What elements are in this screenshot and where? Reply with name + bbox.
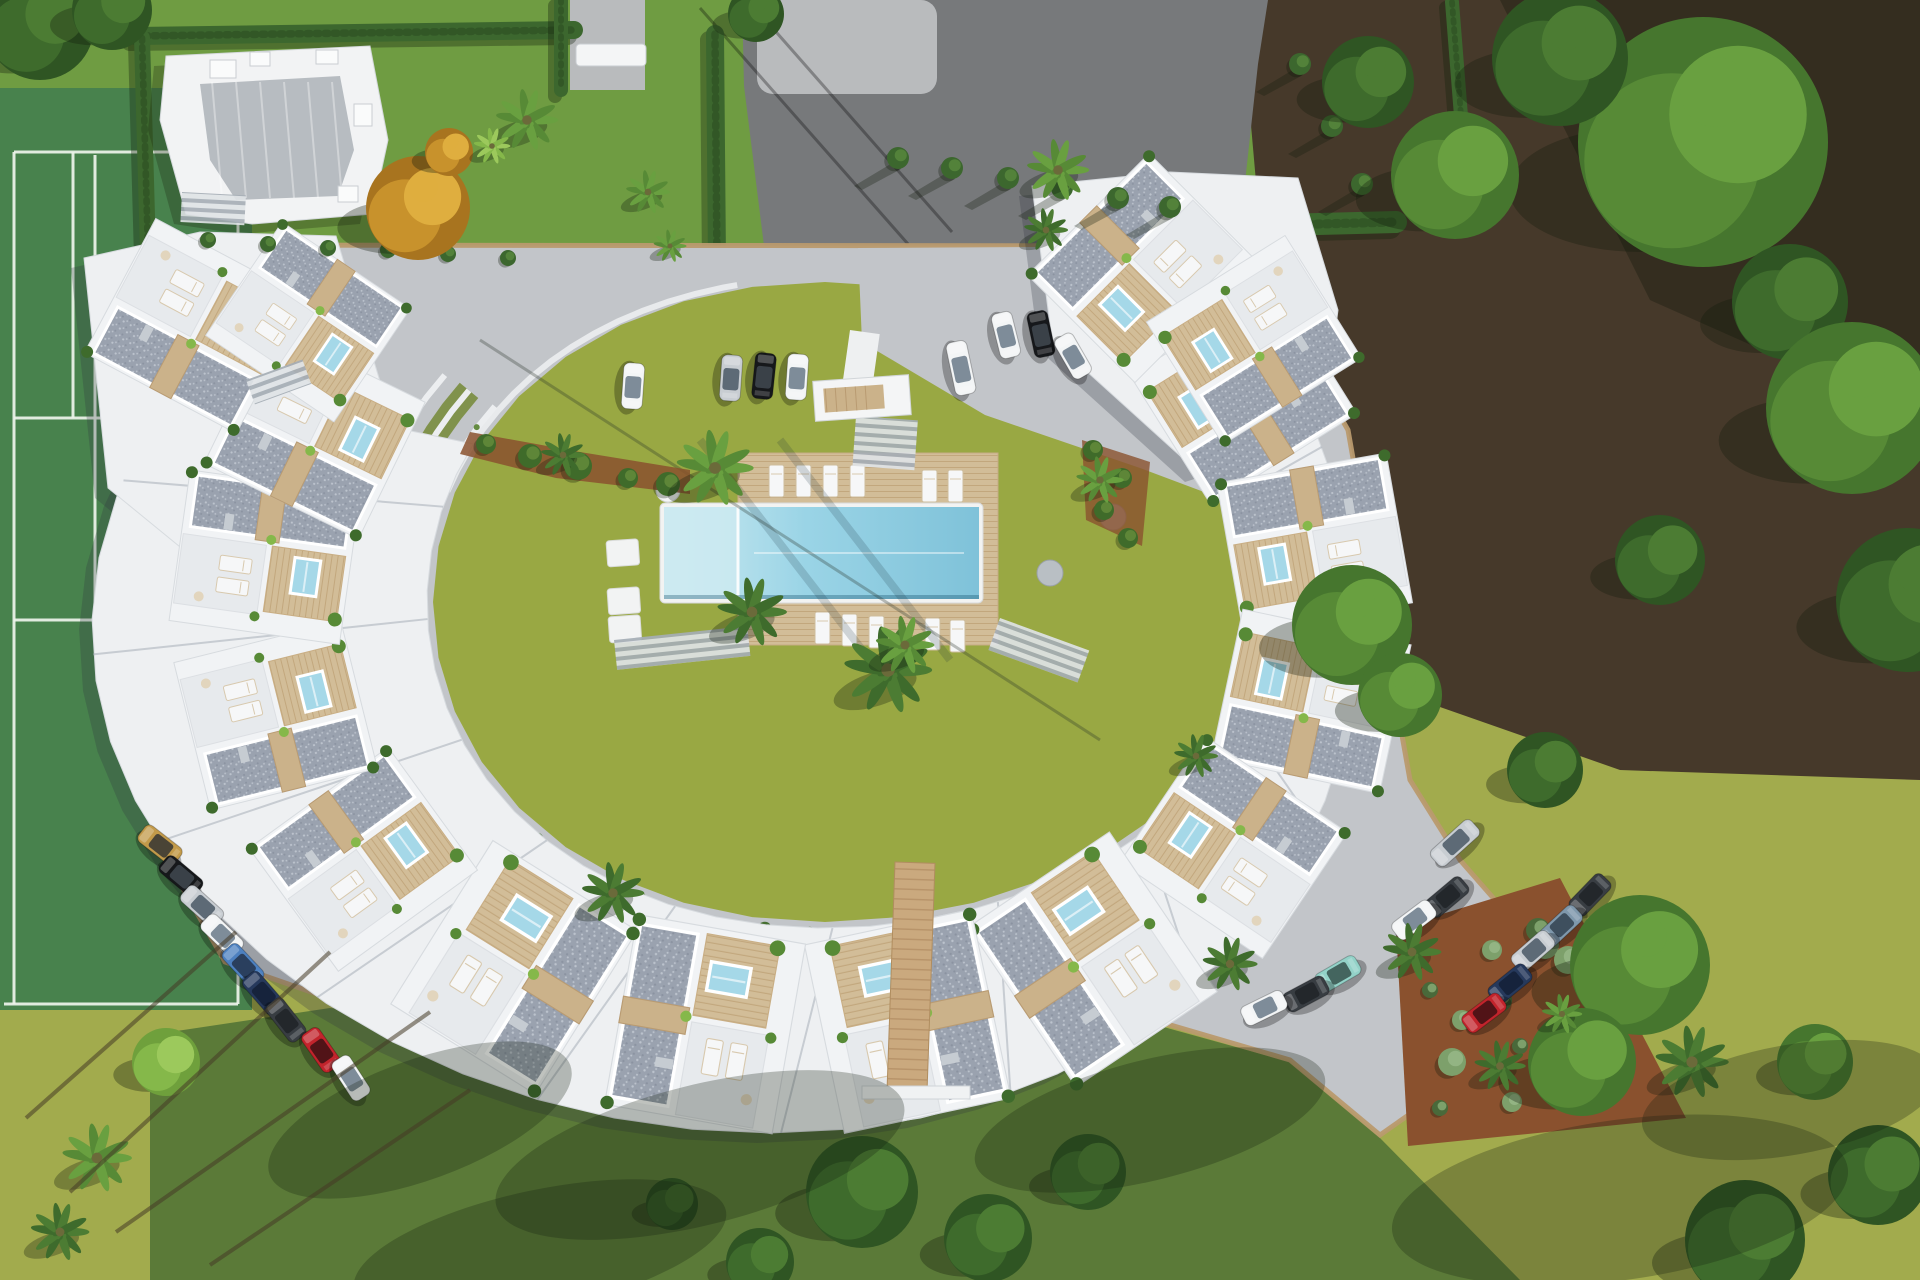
tree-highlight bbox=[1392, 666, 1416, 690]
bush-highlight bbox=[1489, 942, 1500, 953]
tree-highlight bbox=[1780, 263, 1812, 295]
lawn-strip bbox=[645, 0, 709, 262]
villa-rooflight bbox=[316, 50, 338, 64]
bush-highlight bbox=[895, 149, 907, 161]
bush-highlight bbox=[483, 436, 494, 447]
tree-highlight bbox=[1681, 57, 1751, 127]
car-glass-roof bbox=[624, 376, 641, 399]
palm-crown bbox=[1686, 1056, 1697, 1067]
palm-crown bbox=[56, 1228, 65, 1237]
car-glass-roof bbox=[788, 367, 805, 390]
villa-rooflight bbox=[250, 52, 270, 66]
bush-highlight bbox=[1297, 55, 1309, 67]
aerial-render bbox=[0, 0, 1920, 1280]
tree-highlight bbox=[1443, 131, 1479, 167]
tree-highlight bbox=[409, 173, 438, 202]
sun-lounger bbox=[815, 612, 830, 644]
tree-highlight bbox=[1548, 12, 1586, 50]
rim-shrub bbox=[474, 424, 480, 430]
roof-terrace bbox=[174, 534, 267, 615]
lawn-lounger bbox=[606, 539, 640, 567]
bush-highlight bbox=[1428, 984, 1437, 993]
bush-highlight bbox=[1005, 169, 1017, 181]
tree-highlight bbox=[445, 136, 458, 149]
sun-lounger bbox=[850, 465, 865, 497]
car-glass-roof bbox=[755, 366, 773, 389]
villa-rooflight bbox=[338, 186, 358, 202]
bush-highlight bbox=[1115, 189, 1127, 201]
tree-highlight bbox=[160, 1039, 179, 1058]
bush-highlight bbox=[1518, 1040, 1527, 1049]
car-glass-roof bbox=[722, 368, 739, 391]
bush-highlight bbox=[266, 238, 275, 247]
central-walk-spine bbox=[887, 862, 935, 1091]
bush-highlight bbox=[1438, 1102, 1447, 1111]
car-trunk bbox=[624, 400, 639, 406]
villa-rooflight bbox=[210, 60, 236, 78]
entrance-gate bbox=[576, 44, 646, 66]
palm-crown bbox=[709, 462, 721, 474]
screenshot-root bbox=[0, 0, 1920, 1280]
hedge-texture bbox=[715, 34, 717, 262]
tree-highlight bbox=[1360, 51, 1386, 77]
palm-crown bbox=[1096, 476, 1103, 483]
palm-crown bbox=[1226, 960, 1234, 968]
stairs bbox=[853, 416, 918, 470]
concrete-table bbox=[1037, 560, 1063, 586]
pergola-slats bbox=[823, 384, 885, 412]
palm-crown bbox=[560, 452, 567, 459]
palm-crown bbox=[489, 143, 495, 149]
tree-highlight bbox=[754, 1239, 773, 1258]
villa-rooflight bbox=[354, 104, 372, 126]
palm-crown bbox=[1043, 227, 1050, 234]
tree-highlight bbox=[980, 1208, 1005, 1233]
palm-crown bbox=[1559, 1011, 1565, 1017]
bush-highlight bbox=[326, 242, 335, 251]
bush-highlight bbox=[1167, 198, 1179, 210]
palm-crown bbox=[1193, 753, 1200, 760]
car-trunk bbox=[722, 392, 737, 398]
entrance-pergola bbox=[813, 375, 912, 422]
car-hood bbox=[757, 354, 774, 364]
car-hood bbox=[724, 356, 741, 365]
bush-highlight bbox=[1448, 1051, 1463, 1066]
palm-crown bbox=[901, 641, 910, 650]
bush-highlight bbox=[1090, 442, 1101, 453]
asphalt-driveway-pad bbox=[757, 0, 937, 94]
tree-highlight bbox=[1341, 584, 1375, 618]
palm-crown bbox=[667, 243, 672, 248]
palm-crown bbox=[645, 189, 652, 196]
sun-lounger bbox=[948, 470, 963, 502]
bush-highlight bbox=[949, 159, 961, 171]
palm-crown bbox=[1408, 948, 1417, 957]
bush-highlight bbox=[506, 252, 515, 261]
palm-crown bbox=[522, 115, 532, 125]
palm-crown bbox=[608, 888, 618, 898]
tree-highlight bbox=[1652, 529, 1677, 554]
sun-lounger bbox=[922, 470, 937, 502]
bush-highlight bbox=[1125, 530, 1136, 541]
bush-highlight bbox=[1101, 502, 1112, 513]
pool-shallow-end bbox=[664, 507, 738, 599]
bush-highlight bbox=[206, 234, 215, 243]
villa-stairs bbox=[180, 192, 245, 225]
palm-crown bbox=[1053, 165, 1063, 175]
tree-highlight bbox=[1572, 1025, 1602, 1055]
tree-highlight bbox=[1627, 917, 1666, 956]
car-hood bbox=[790, 355, 807, 364]
lawn-lounger bbox=[607, 587, 641, 615]
bush-highlight bbox=[625, 470, 636, 481]
sun-lounger bbox=[769, 465, 784, 497]
car-trunk bbox=[788, 391, 803, 397]
tree-highlight bbox=[1538, 744, 1559, 765]
bush-highlight bbox=[526, 446, 539, 459]
tree-highlight bbox=[1869, 1141, 1897, 1169]
car-hood bbox=[626, 364, 643, 373]
tree-highlight bbox=[1837, 350, 1885, 398]
palm-crown bbox=[747, 607, 758, 618]
palm-crown bbox=[1496, 1062, 1504, 1070]
